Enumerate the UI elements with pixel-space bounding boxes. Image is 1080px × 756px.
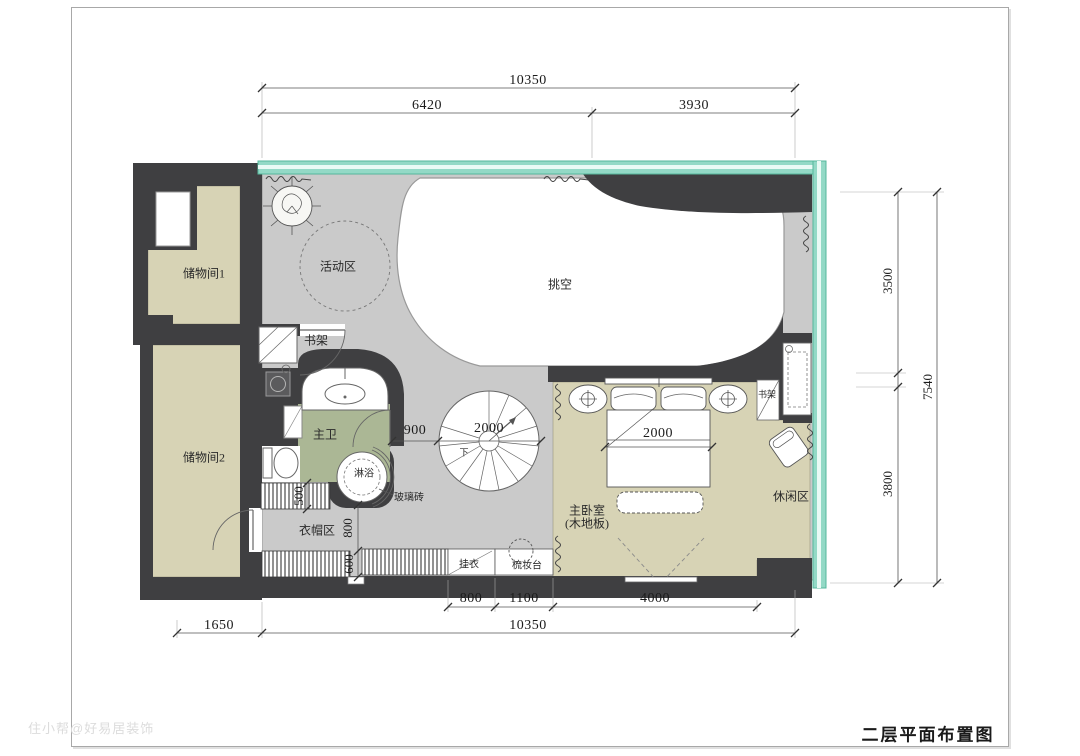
dim-right-total: 7540: [920, 374, 936, 400]
label-stair-down: 下: [459, 446, 468, 459]
room-label-storage2: 储物间2: [183, 449, 225, 466]
room-label-leisure: 休闲区: [773, 488, 809, 505]
dim-bed-width: 2000: [643, 426, 673, 442]
dim-right-upper: 3500: [880, 268, 896, 294]
dim-wardrobe-depth: 500: [291, 486, 307, 506]
dim-bottom-dresser: 1100: [509, 591, 538, 607]
dim-right-lower: 3800: [880, 471, 896, 497]
room-label-storage1: 储物间1: [183, 265, 225, 282]
label-bookshelf-top: 书架: [304, 332, 328, 349]
storage1-closet: [156, 192, 190, 246]
label-hang-clothes: 挂衣: [459, 556, 479, 571]
dim-bottom-hang: 800: [460, 591, 483, 607]
drawing-title: 二层平面布置图: [862, 721, 995, 746]
room-label-activity: 活动区: [320, 258, 356, 275]
label-shower: 淋浴: [354, 465, 374, 480]
sink-icon: [325, 384, 365, 404]
tv-icon: [625, 577, 697, 582]
watermark: 住小帮@好易居装饰: [28, 718, 154, 737]
dim-bottom-offset: 1650: [204, 618, 234, 634]
dim-bottom-bedroom: 4000: [640, 591, 670, 607]
label-glass-brick: 玻璃砖: [394, 489, 424, 504]
floor-plan-page: 10350 6420 3930 3500 7540 3800 800 1100 …: [0, 0, 1080, 756]
bed-bench: [617, 492, 703, 513]
pillow-right: [661, 387, 706, 410]
room-label-cloakroom: 衣帽区: [299, 522, 335, 539]
dim-closet-corridor: 800: [340, 518, 356, 538]
label-dressing-table: 梳妆台: [512, 557, 542, 572]
washer-icon: [266, 372, 290, 396]
dim-bottom-total: 10350: [509, 618, 547, 634]
wardrobe-left: [262, 551, 350, 577]
dim-closet-depth: 600: [341, 554, 357, 574]
dim-top-right: 3930: [679, 98, 709, 114]
label-bookshelf-right: 书架: [758, 388, 776, 401]
room-label-void: 挑空: [548, 276, 572, 293]
wardrobe-right: [362, 549, 448, 575]
dim-top-left: 6420: [412, 98, 442, 114]
dim-stair-diameter: 2000: [474, 421, 504, 437]
room-label-master-bath: 主卫: [313, 426, 337, 443]
room-label-bedroom-floor: (木地板): [565, 515, 609, 532]
dim-top-total: 10350: [509, 73, 547, 89]
dim-bath-corridor: 900: [404, 423, 427, 439]
floor-plan: 10350 6420 3930 3500 7540 3800 800 1100 …: [0, 0, 1080, 756]
pillow-left: [611, 387, 656, 410]
toilet-icon: [263, 448, 272, 478]
floor-plan-svg: [0, 0, 1080, 756]
